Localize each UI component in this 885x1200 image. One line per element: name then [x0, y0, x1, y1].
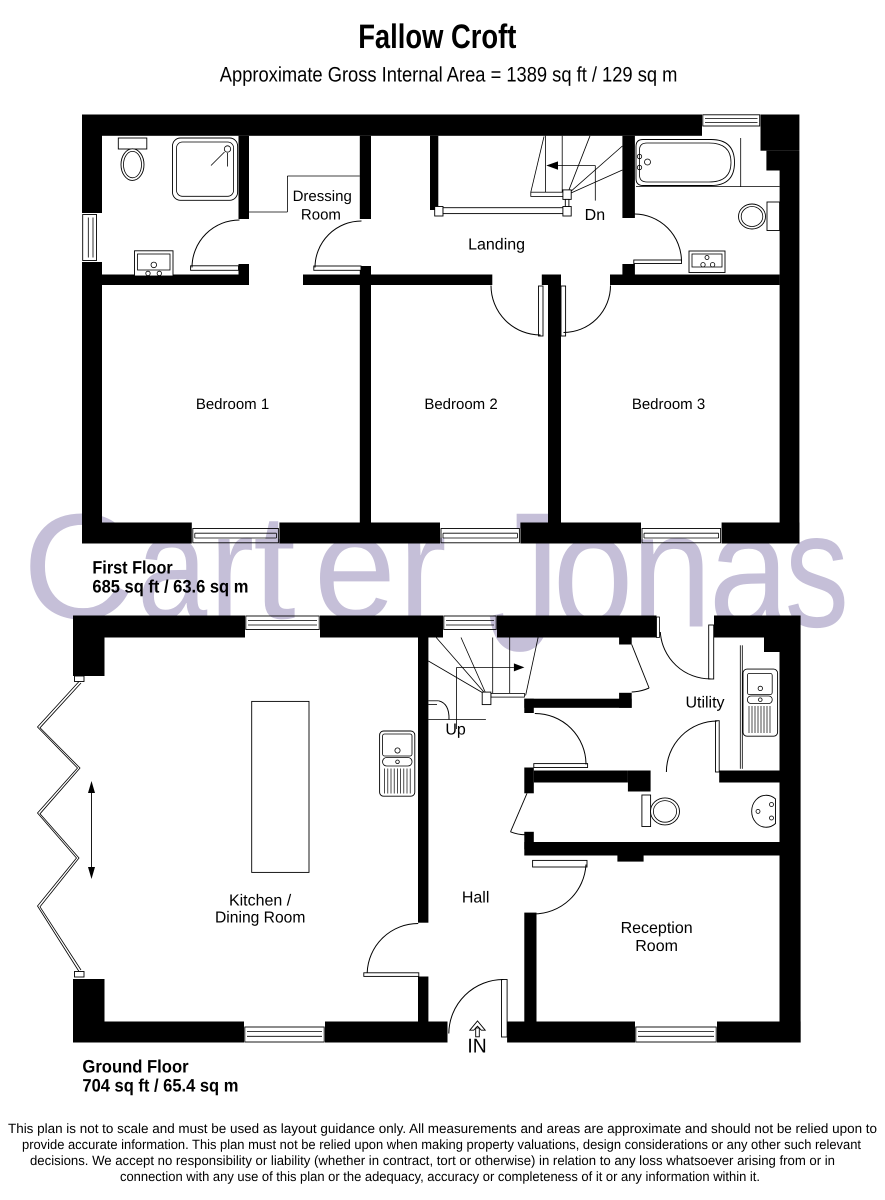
svg-text:a: a: [137, 482, 208, 650]
svg-text:Kitchen /: Kitchen /: [229, 893, 292, 910]
svg-text:r: r: [209, 482, 254, 650]
svg-text:Dining Room: Dining Room: [215, 910, 305, 927]
svg-text:o: o: [553, 478, 634, 662]
svg-text:Dn: Dn: [585, 207, 605, 224]
svg-text:C: C: [22, 482, 134, 650]
svg-text:Room: Room: [635, 938, 678, 955]
svg-text:r: r: [398, 482, 446, 650]
svg-text:704 sq ft / 65.4 sq m: 704 sq ft / 65.4 sq m: [82, 1076, 238, 1096]
svg-text:Ground Floor: Ground Floor: [82, 1057, 188, 1077]
svg-text:J: J: [488, 471, 561, 692]
svg-text:s: s: [785, 478, 849, 662]
svg-text:IN: IN: [467, 1036, 486, 1058]
svg-text:Approximate Gross Internal Are: Approximate Gross Internal Area = 1389 s…: [220, 64, 678, 87]
svg-text:connection with any use of thi: connection with any use of this plan or …: [120, 1169, 760, 1184]
svg-text:n: n: [631, 478, 712, 662]
svg-text:Reception: Reception: [621, 920, 693, 937]
svg-text:Fallow Croft: Fallow Croft: [358, 18, 516, 56]
svg-text:This plan is not to scale and: This plan is not to scale and must be us…: [8, 1121, 877, 1136]
svg-text:decisions. We accept no respon: decisions. We accept no responsibility o…: [30, 1153, 835, 1168]
svg-text:e: e: [314, 482, 396, 650]
svg-text:Utility: Utility: [685, 695, 724, 712]
svg-text:t: t: [253, 482, 296, 650]
svg-text:Up: Up: [445, 722, 466, 739]
svg-text:Dressing: Dressing: [293, 188, 352, 205]
svg-text:Bedroom 1: Bedroom 1: [196, 396, 269, 413]
svg-text:Room: Room: [301, 207, 341, 224]
svg-text:provide accurate information.: provide accurate information. This plan …: [22, 1137, 861, 1152]
svg-text:Bedroom 3: Bedroom 3: [632, 396, 705, 413]
svg-text:Hall: Hall: [462, 890, 490, 907]
svg-text:Landing: Landing: [468, 237, 525, 254]
svg-text:Bedroom 2: Bedroom 2: [424, 396, 497, 413]
svg-text:a: a: [709, 478, 790, 662]
